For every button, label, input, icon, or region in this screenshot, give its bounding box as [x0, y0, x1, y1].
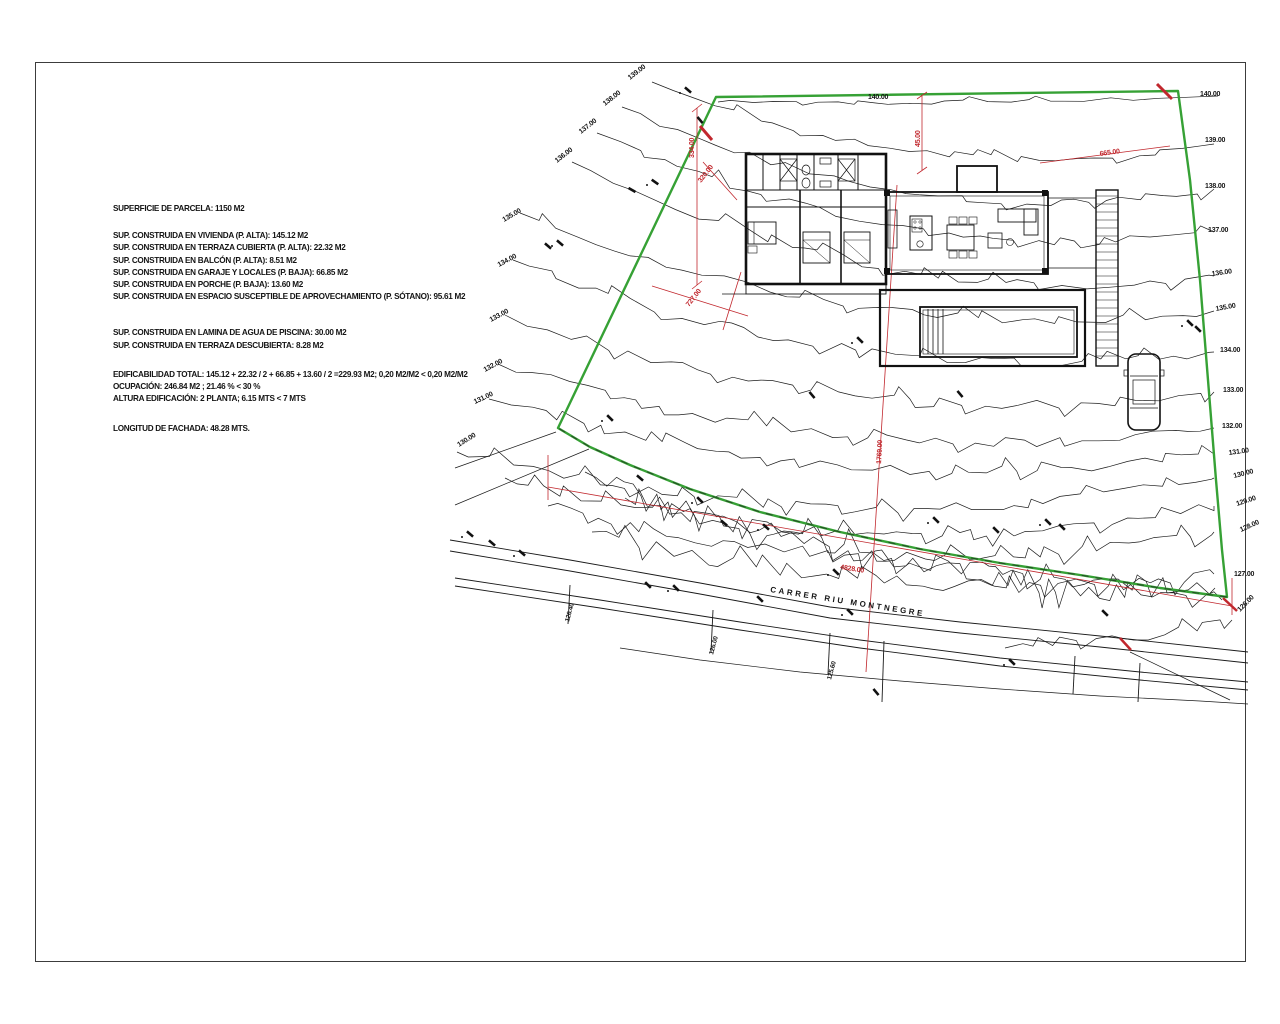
- dimension-label: 665.00: [1099, 148, 1120, 158]
- bedroom-wing: [746, 154, 886, 284]
- survey-mark: [1195, 326, 1201, 332]
- survey-mark: [957, 391, 962, 397]
- survey-mark: [637, 475, 643, 480]
- contour-label: 132.00: [1222, 423, 1243, 430]
- survey-dot: [513, 555, 515, 557]
- contour-label: 138.00: [1205, 183, 1226, 190]
- survey-mark: [873, 689, 878, 695]
- survey-dot: [667, 590, 669, 592]
- survey-mark: [809, 392, 814, 398]
- corner-pads: [884, 190, 1048, 274]
- contour-label: 127.00: [1234, 571, 1255, 578]
- survey-mark: [519, 550, 525, 555]
- dimension-label: 334.00: [689, 137, 696, 158]
- parcel-boundary: [558, 91, 1227, 597]
- survey-dot: [1039, 524, 1041, 526]
- dim-line: [723, 272, 741, 330]
- road-elevation-label: 126.40: [564, 602, 576, 622]
- survey-dot: [827, 574, 829, 576]
- contour-label: 135.00: [502, 207, 523, 223]
- contour-label: 130.00: [456, 432, 477, 449]
- survey-mark: [757, 596, 763, 602]
- road-elevation-label: 126.00: [708, 635, 720, 655]
- survey-mark: [933, 517, 939, 523]
- road-edge: [455, 578, 1248, 682]
- survey-mark: [833, 569, 839, 575]
- survey-dot: [1181, 325, 1183, 327]
- contour-line: [489, 399, 1214, 480]
- contour-label: 135.00: [1215, 303, 1236, 313]
- survey-mark: [697, 497, 703, 503]
- dimension-label: 4828.00: [840, 564, 865, 575]
- dimension-label: 45.00: [915, 130, 922, 147]
- pool: [920, 307, 1077, 357]
- contour-label: 128.00: [1239, 519, 1261, 534]
- survey-mark: [857, 337, 863, 343]
- car: [1124, 354, 1164, 430]
- contour-label: 133.00: [1223, 387, 1244, 394]
- kitchen: [888, 210, 932, 250]
- site-plan-svg: 140.00139.00138.00137.00136.00135.00134.…: [0, 0, 1280, 1024]
- lot-line: [620, 648, 1248, 704]
- survey-dot: [1003, 664, 1005, 666]
- contour-label: 136.00: [1211, 268, 1232, 278]
- contour-label: 137.00: [1208, 227, 1229, 234]
- survey-mark: [652, 180, 659, 185]
- survey-dot: [851, 342, 853, 344]
- dim-line: [548, 487, 1232, 606]
- house-plan: [722, 154, 1118, 366]
- contour-label: 138.00: [602, 89, 622, 107]
- porch: [957, 166, 997, 192]
- bathroom-fixtures: [802, 158, 831, 188]
- dimension-label: 727.00: [685, 288, 703, 308]
- dimension-label: 1769.00: [876, 440, 884, 465]
- road-elevation-label: 125.60: [826, 660, 838, 680]
- boundary-road-dash: [558, 428, 1227, 597]
- contour-label: 126.00: [1236, 594, 1255, 613]
- beds: [748, 222, 870, 263]
- balcony: [746, 284, 886, 294]
- contour-label: 132.00: [483, 358, 504, 374]
- contour-label: 129.00: [1235, 495, 1257, 508]
- contour-label: 134.00: [1220, 347, 1241, 354]
- survey-mark: [993, 527, 999, 533]
- contour-label: 131.00: [1228, 447, 1249, 457]
- contour-label: 139.00: [627, 63, 647, 81]
- contour-label: 131.00: [473, 391, 495, 406]
- survey-mark: [697, 117, 702, 123]
- contour-line: [457, 448, 1214, 521]
- dim-tick-bold: [700, 126, 712, 140]
- survey-dot: [551, 245, 553, 247]
- survey-dot: [646, 184, 648, 186]
- survey-dot: [927, 522, 929, 524]
- dimension-label: 320.00: [697, 164, 715, 184]
- contour-label: 137.00: [578, 117, 598, 135]
- survey-mark: [467, 531, 473, 536]
- pool-terrace: [880, 290, 1085, 366]
- contour-label: 140.00: [1200, 91, 1221, 98]
- contour-line: [1005, 619, 1232, 649]
- survey-mark: [629, 188, 636, 192]
- dining-set: [947, 217, 977, 258]
- survey-mark: [1187, 320, 1193, 326]
- survey-mark: [1102, 610, 1108, 616]
- contour-label: 136.00: [554, 146, 574, 164]
- survey-mark: [685, 87, 691, 92]
- road-name-label: CARRER RIU MONTNEGRE: [770, 585, 926, 618]
- sofa-set: [988, 209, 1038, 248]
- survey-mark: [545, 243, 551, 248]
- closet-hatch: [780, 159, 855, 181]
- contour-label: 140.00: [868, 94, 889, 101]
- survey-mark: [1009, 659, 1015, 665]
- contour-label: 130.00: [1233, 468, 1255, 480]
- survey-dot: [841, 614, 843, 616]
- contour-line: [622, 107, 1214, 210]
- dim-line: [866, 185, 897, 672]
- lot-divider: [1138, 663, 1140, 702]
- contour-label: 139.00: [1205, 137, 1226, 144]
- survey-dot: [461, 536, 463, 538]
- boundary-green: [558, 91, 1227, 597]
- survey-mark: [1045, 519, 1051, 525]
- survey-mark: [607, 415, 613, 421]
- dim-tick-bold: [1120, 638, 1131, 650]
- lot-divider: [1073, 656, 1075, 694]
- survey-dot: [757, 529, 759, 531]
- survey-dot: [601, 420, 603, 422]
- survey-mark: [847, 609, 853, 615]
- survey-mark: [557, 240, 563, 245]
- contour-line: [498, 364, 1214, 452]
- slat-deck: [1048, 190, 1118, 366]
- survey-dot: [679, 92, 681, 94]
- survey-dot: [691, 502, 693, 504]
- contour-line: [718, 96, 1218, 105]
- lot-divider: [882, 641, 884, 702]
- survey-mark: [489, 540, 495, 545]
